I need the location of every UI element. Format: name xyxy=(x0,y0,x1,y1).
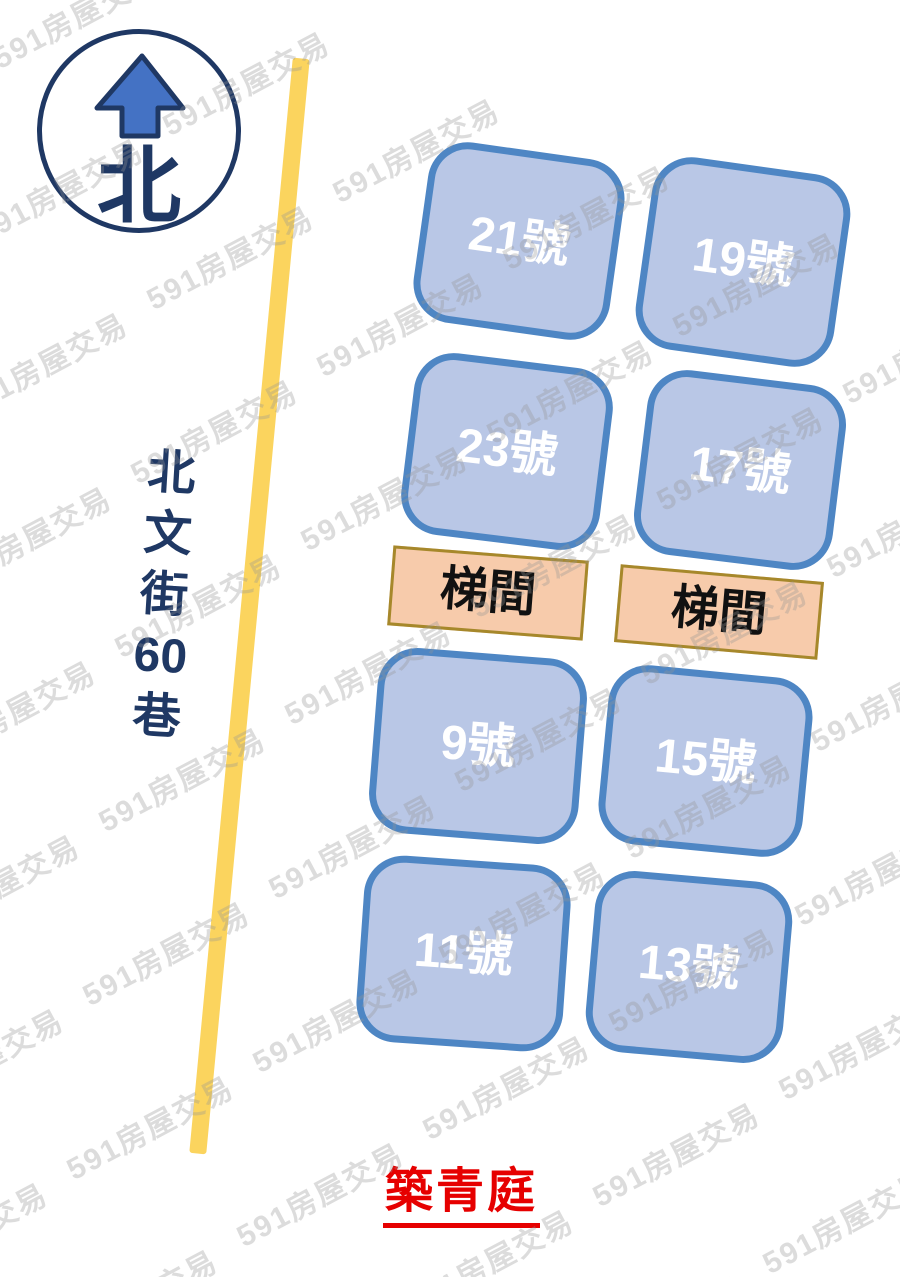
street-name: 北 文 街 60 巷 xyxy=(127,448,201,743)
unit-box-9: 9號 xyxy=(366,645,590,847)
street-char: 文 xyxy=(142,509,193,560)
unit-box-21: 21號 xyxy=(408,137,629,345)
unit-box-17: 17號 xyxy=(629,366,850,575)
unit-label: 23號 xyxy=(454,421,561,481)
watermark-text: 591房屋交易 xyxy=(0,648,103,773)
watermark-text: 591房屋交易 xyxy=(0,996,71,1121)
unit-box-15: 15號 xyxy=(595,662,816,861)
unit-label: 11號 xyxy=(413,926,515,981)
unit-label: 9號 xyxy=(439,719,517,773)
watermark-text: 591房屋交易 xyxy=(753,1157,900,1277)
watermark-text: 591房屋交易 xyxy=(57,1063,240,1188)
compass-north-label: 北 xyxy=(42,144,236,228)
watermark-text: 591房屋交易 xyxy=(785,809,900,934)
street-char: 巷 xyxy=(131,692,182,743)
street-char: 街 xyxy=(139,570,190,621)
watermark-text: 591房屋交易 xyxy=(0,1170,55,1277)
stairwell-label: 梯間 xyxy=(438,565,537,620)
plan-title: 築青庭 xyxy=(383,1168,540,1228)
unit-box-13: 13號 xyxy=(582,868,795,1067)
watermark-text: 591房屋交易 xyxy=(0,822,87,947)
stairwell-box-right: 梯間 xyxy=(614,564,824,659)
site-plan: 北 北 文 街 60 巷 21號 19號 23號 17號 9號 15號 11號 … xyxy=(0,0,900,1277)
watermark-text: 591房屋交易 xyxy=(567,1264,750,1277)
unit-label: 19號 xyxy=(689,231,796,293)
watermark-text: 591房屋交易 xyxy=(833,287,900,412)
north-arrow-icon xyxy=(92,52,188,140)
watermark-text: 591房屋交易 xyxy=(0,474,119,599)
stairwell-box-left: 梯間 xyxy=(387,545,589,640)
watermark-text: 591房屋交易 xyxy=(0,300,135,425)
unit-label: 17號 xyxy=(687,440,794,500)
watermark-text: 591房屋交易 xyxy=(41,1237,224,1277)
unit-label: 15號 xyxy=(653,732,759,789)
stairwell-label: 梯間 xyxy=(669,584,769,640)
unit-box-11: 11號 xyxy=(354,853,574,1054)
compass: 北 xyxy=(37,29,241,233)
unit-label: 13號 xyxy=(636,939,741,996)
watermark-text: 591房屋交易 xyxy=(769,983,900,1108)
unit-box-19: 19號 xyxy=(630,152,855,372)
street-char: 北 xyxy=(146,449,197,500)
watermark-text: 591房屋交易 xyxy=(583,1090,766,1215)
unit-box-23: 23號 xyxy=(397,348,618,554)
unit-label: 21號 xyxy=(465,210,572,272)
street-char: 60 xyxy=(132,631,188,682)
